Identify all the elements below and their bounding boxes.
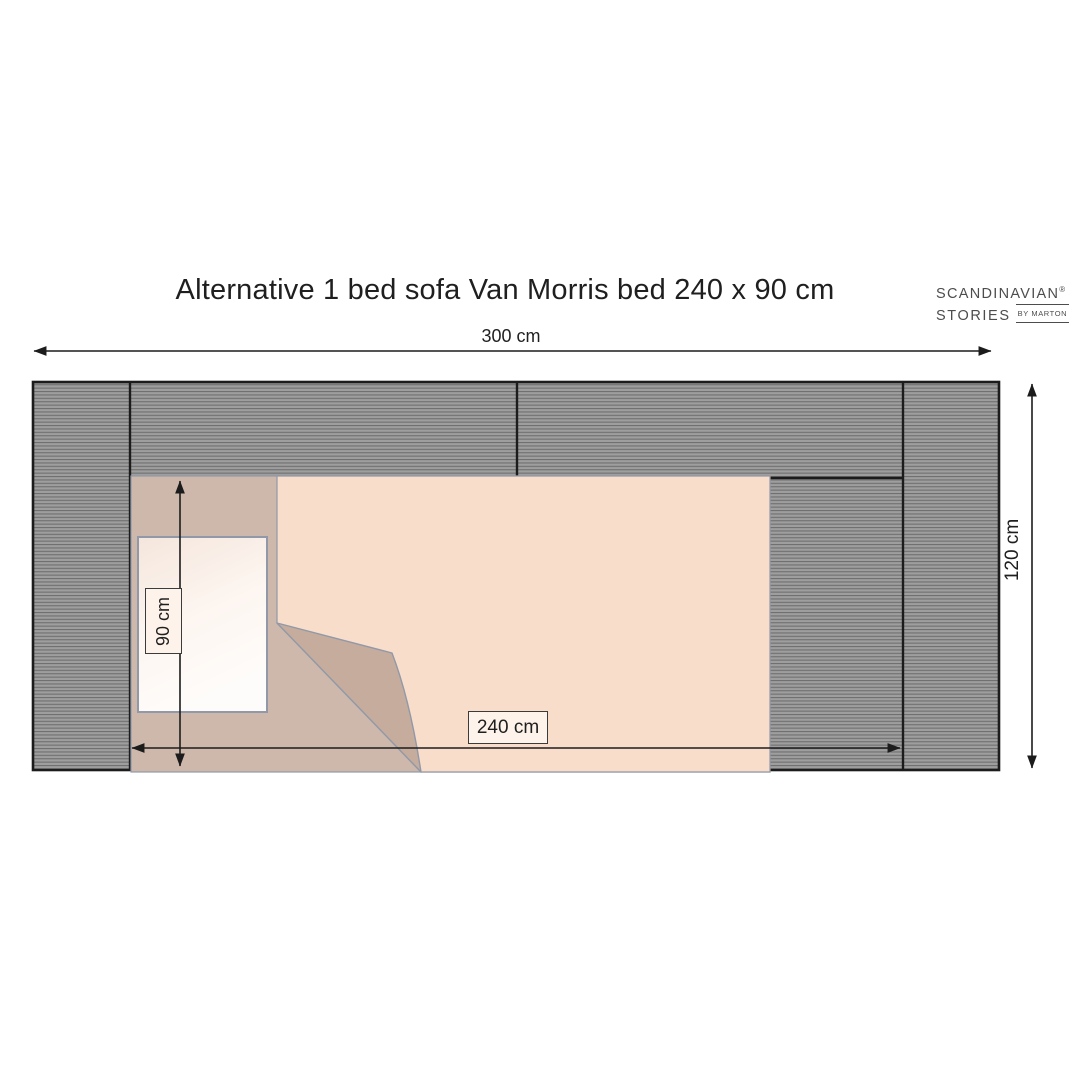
dimension-label-overall-depth: 120 cm [1002, 519, 1024, 581]
bed-width-text: 90 cm [153, 596, 174, 645]
dimension-label-bed-length: 240 cm [468, 711, 548, 744]
dimension-label-bed-width: 90 cm [145, 588, 182, 654]
sofa-bed-diagram [0, 0, 1080, 1080]
dimension-label-overall-width: 300 cm [481, 326, 540, 347]
bed-length-text: 240 cm [477, 717, 539, 739]
page: Alternative 1 bed sofa Van Morris bed 24… [0, 0, 1080, 1080]
